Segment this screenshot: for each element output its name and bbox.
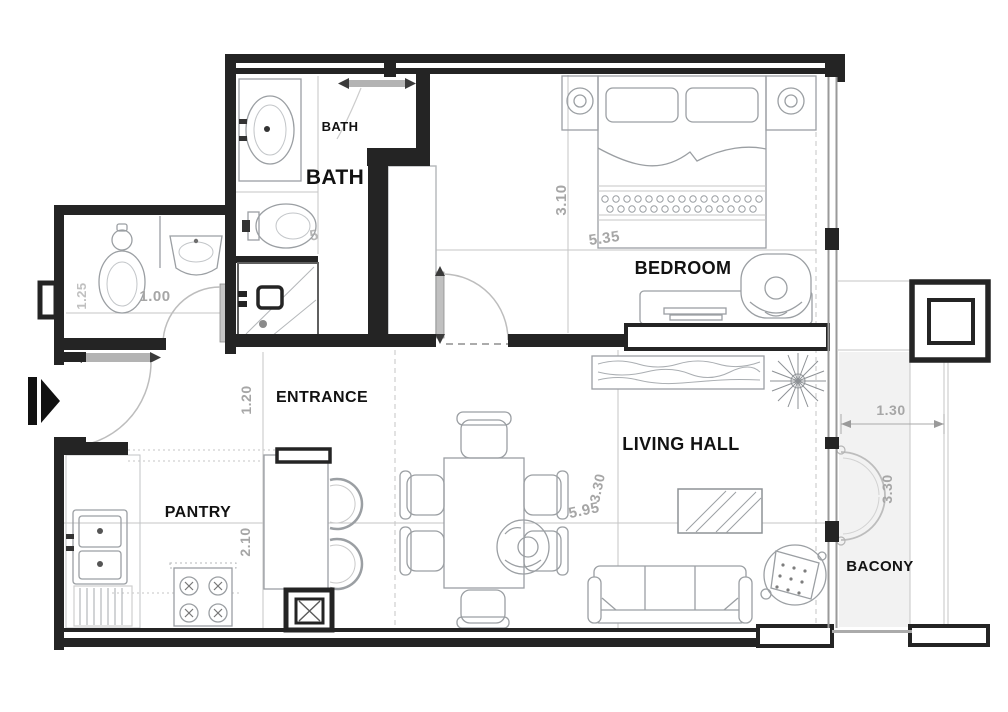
powder-width-dim: 1.00 <box>139 288 170 305</box>
bath-toilet <box>242 204 316 248</box>
powder-depth-dim: 1.25 <box>74 282 89 309</box>
bath-label: BATH <box>306 166 364 189</box>
toilet <box>99 224 145 313</box>
stove <box>170 563 236 626</box>
entrance-label: ENTRANCE <box>276 389 368 406</box>
living-hall-label: LIVING HALL <box>622 434 739 454</box>
column <box>286 590 332 630</box>
floor-plan-drawing: BATH BATH BEDROOM ENTRANCE LIVING HALL P… <box>0 0 1008 712</box>
bedroom <box>562 76 816 324</box>
balcony-width-dim-text: 1.30 <box>876 402 905 418</box>
entrance-arrow <box>28 377 60 425</box>
nightstand-left <box>562 76 598 130</box>
bedroom-door <box>435 266 508 344</box>
living-hall <box>588 353 826 623</box>
shower-head <box>258 287 282 308</box>
vanity-sink <box>239 79 301 181</box>
bedroom-label: BEDROOM <box>635 258 732 278</box>
pantry <box>66 455 362 630</box>
bar-stools <box>330 479 362 589</box>
powder-room <box>99 216 228 344</box>
balcony-depth-dim: 3.30 <box>879 474 895 503</box>
armchair <box>761 545 826 605</box>
wash-basin <box>170 236 222 275</box>
bath-upper-label: BATH <box>322 119 359 134</box>
pantry-label: PANTRY <box>165 504 231 521</box>
pantry-depth-dim: 2.10 <box>237 527 253 556</box>
kitchen-sink <box>66 510 127 584</box>
balcony-column <box>912 282 988 360</box>
powder-door <box>163 284 228 344</box>
bed <box>598 76 766 248</box>
floor-plan-page: BATH BATH BEDROOM ENTRANCE LIVING HALL P… <box>0 0 1008 712</box>
dining-set <box>400 412 568 628</box>
bar-counter <box>264 455 328 589</box>
plant <box>770 353 826 409</box>
coffee-table <box>678 489 762 533</box>
living-depth-dim: 3.30 <box>586 472 608 504</box>
entrance-width-dim: 1.20 <box>238 385 254 414</box>
nightstand-right <box>766 76 816 130</box>
sofa <box>588 566 752 623</box>
balcony-label: BACONY <box>846 558 913 575</box>
drying-rack <box>74 586 132 626</box>
bedroom-depth-dim: 3.10 <box>553 184 570 215</box>
closet-shaft <box>388 166 436 336</box>
entrance-door <box>66 352 161 447</box>
tv-console <box>592 356 764 389</box>
shower <box>236 256 318 337</box>
desk-chair-person <box>741 254 811 318</box>
